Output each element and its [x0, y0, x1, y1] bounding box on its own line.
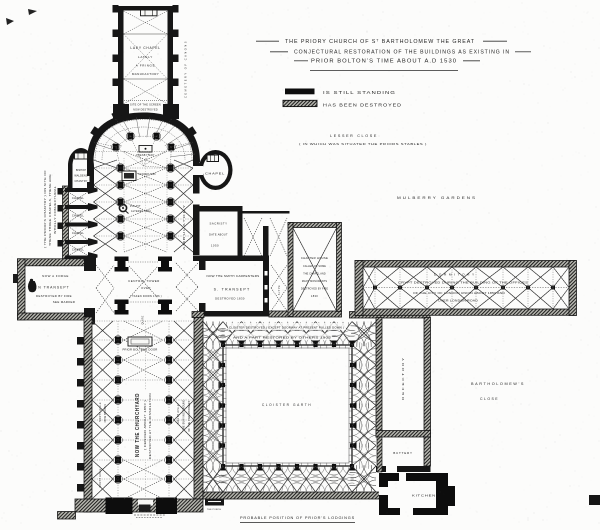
svg-text:ALTERED 1864: ALTERED 1864 — [131, 210, 151, 213]
svg-text:BUTTERY: BUTTERY — [393, 451, 413, 455]
svg-text:NOW A FORGE: NOW A FORGE — [42, 274, 69, 278]
svg-text:THE PORCH: THE PORCH — [207, 509, 222, 511]
svg-text:( FENCED ABOUT 1850 ): ( FENCED ABOUT 1850 ) — [143, 400, 147, 450]
svg-text:PRIOR BOLTONS DOOR: PRIOR BOLTONS DOOR — [123, 349, 158, 352]
svg-text:NOW THE CHURCHYARD: NOW THE CHURCHYARD — [135, 393, 141, 457]
svg-text:CHAPEL: CHAPEL — [72, 248, 85, 252]
svg-text:PROBABLE POSITION OF PRIOR’S L: PROBABLE POSITION OF PRIOR’S LODGINGS — [240, 516, 355, 520]
svg-text:N TRANSEPT: N TRANSEPT — [38, 286, 69, 290]
svg-text:CHAPEL: CHAPEL — [205, 172, 225, 176]
svg-text:OF THE PARISHIONERS: OF THE PARISHIONERS — [188, 400, 191, 431]
svg-text:CHAPTER HOUSE: CHAPTER HOUSE — [301, 256, 328, 260]
svg-text:THE PRIORY CHURCH OF ST BARTHO: THE PRIORY CHURCH OF ST BARTHOLOMEW THE … — [285, 39, 475, 45]
svg-text:SEE MARKER: SEE MARKER — [53, 300, 75, 304]
svg-text:DESTROYED BY FIRE: DESTROYED BY FIRE — [36, 294, 72, 298]
svg-text:SOUTH AISLE: SOUTH AISLE — [177, 404, 180, 424]
svg-text:DATE ABOUT: DATE ABOUT — [209, 234, 228, 237]
svg-text:SACRISTY: SACRISTY — [210, 222, 228, 226]
svg-text:DESTROYED BY FIRE: DESTROYED BY FIRE — [301, 288, 329, 291]
svg-text:LADY CHAPEL: LADY CHAPEL — [130, 46, 160, 50]
svg-text:D O R M I T O R Y: D O R M I T O R Y — [434, 273, 475, 277]
svg-text:KITCHEN: KITCHEN — [412, 494, 436, 498]
svg-text:PRIOR BOLTON’S TIME ABOUT A.D: PRIOR BOLTON’S TIME ABOUT A.D 1530 — [311, 59, 457, 65]
svg-text:CALLED OF SOME: CALLED OF SOME — [303, 265, 326, 268]
svg-text:CLOISTER GARTH: CLOISTER GARTH — [262, 403, 312, 407]
svg-text:SLYPE: SLYPE — [278, 285, 281, 295]
svg-text:AMBULATORY: AMBULATORY — [183, 204, 186, 250]
svg-text:NOW DESTROYED: NOW DESTROYED — [133, 109, 158, 112]
svg-text:LESSER CLOSE: LESSER CLOSE — [330, 134, 378, 138]
svg-text:CLOISTER DESTROYED ( EXCEPT DO: CLOISTER DESTROYED ( EXCEPT DOORWAY AT P… — [229, 326, 344, 330]
svg-text:CLOSE: CLOSE — [480, 397, 499, 401]
svg-text:( THE PRIOR’S CHANTRY ) ON SIT: ( THE PRIOR’S CHANTRY ) ON SITE OF — [44, 170, 47, 248]
svg-text:S. TRANSEPT: S. TRANSEPT — [214, 288, 251, 292]
svg-text:( IN WHICH WAS SITUATED THE PR: ( IN WHICH WAS SITUATED THE PRIORS STABL… — [299, 142, 427, 146]
svg-text:CHAPEL: CHAPEL — [72, 214, 85, 218]
svg-text:CRYPT DESTROYED DURING THE BUI: CRYPT DESTROYED DURING THE BUILDING OF T… — [398, 281, 528, 285]
svg-text:THE BURYING GROUND: THE BURYING GROUND — [184, 399, 186, 430]
svg-text:CHANTRY: CHANTRY — [74, 180, 87, 183]
svg-text:CONJECTURAL RESTORATION OF THE: CONJECTURAL RESTORATION OF THE BUILDINGS… — [294, 50, 510, 56]
svg-text:MANY MONUMENTS: MANY MONUMENTS — [302, 280, 328, 283]
svg-text:QUIRE: QUIRE — [142, 315, 145, 324]
svg-text:SITE OF THE SCREEN: SITE OF THE SCREEN — [130, 104, 161, 107]
svg-text:CEMETERY OF CANONS: CEMETERY OF CANONS — [184, 40, 188, 98]
svg-text:MANUFACTORY: MANUFACTORY — [132, 72, 159, 76]
svg-text:MULBERRY GARDENS: MULBERRY GARDENS — [397, 196, 477, 200]
svg-text:1050: 1050 — [211, 244, 219, 248]
svg-text:AND A PART RESTORED BY OTHERS: AND A PART RESTORED BY OTHERS 1905 — [233, 336, 332, 340]
svg-text:WHOLLY CONJECTURAL: WHOLLY CONJECTURAL — [54, 185, 57, 234]
svg-text:CHAPEL: CHAPEL — [72, 231, 85, 235]
svg-text:PULPIT: PULPIT — [130, 204, 141, 208]
svg-text:A FRINGE: A FRINGE — [136, 64, 156, 68]
svg-text:DESTROYED 1830: DESTROYED 1830 — [215, 297, 245, 301]
svg-text:1830: 1830 — [311, 294, 318, 298]
svg-text:WALDENS: WALDENS — [74, 175, 88, 178]
svg-text:NORTH AISLE: NORTH AISLE — [99, 402, 102, 422]
svg-text:OVER: OVER — [141, 286, 151, 290]
svg-text:REFECTORY: REFECTORY — [401, 356, 405, 400]
svg-text:BARTHOLOMEW’S: BARTHOLOMEW’S — [471, 382, 525, 386]
svg-text:PRESBYTERY: PRESBYTERY — [136, 154, 155, 157]
svg-text:OVER LONDON ROAD: OVER LONDON ROAD — [438, 299, 478, 303]
svg-text:NORTH AISLE: NORTH AISLE — [99, 468, 102, 487]
svg-text:LATELY: LATELY — [138, 55, 153, 59]
svg-text:OF THE CITY OF LONDON UNION AB: OF THE CITY OF LONDON UNION ABOUT 1850 A… — [413, 291, 505, 295]
svg-text:DESTROYED AT THE DISSOLUTION: DESTROYED AT THE DISSOLUTION — [148, 393, 152, 459]
svg-text:IS STILL STANDING: IS STILL STANDING — [323, 90, 396, 95]
svg-text:THESE THREE CHAPELS, THESE ARE: THESE THREE CHAPELS, THESE ARE — [49, 174, 52, 246]
svg-text:CHAPEL: CHAPEL — [72, 196, 85, 200]
svg-text:BISHOP: BISHOP — [76, 169, 87, 172]
svg-text:NOW HOUSES: NOW HOUSES — [105, 404, 107, 423]
svg-text:THE CHAPEL AND: THE CHAPEL AND — [303, 273, 326, 276]
svg-text:HAS BEEN DESTROYED: HAS BEEN DESTROYED — [323, 103, 402, 108]
svg-text:NOW THE SMITH CARPENTERS: NOW THE SMITH CARPENTERS — [207, 275, 260, 278]
svg-text:FOUNDERS TOMB: FOUNDERS TOMB — [139, 172, 156, 176]
svg-text:( TAKEN DOWN 1786 ): ( TAKEN DOWN 1786 ) — [130, 294, 162, 298]
